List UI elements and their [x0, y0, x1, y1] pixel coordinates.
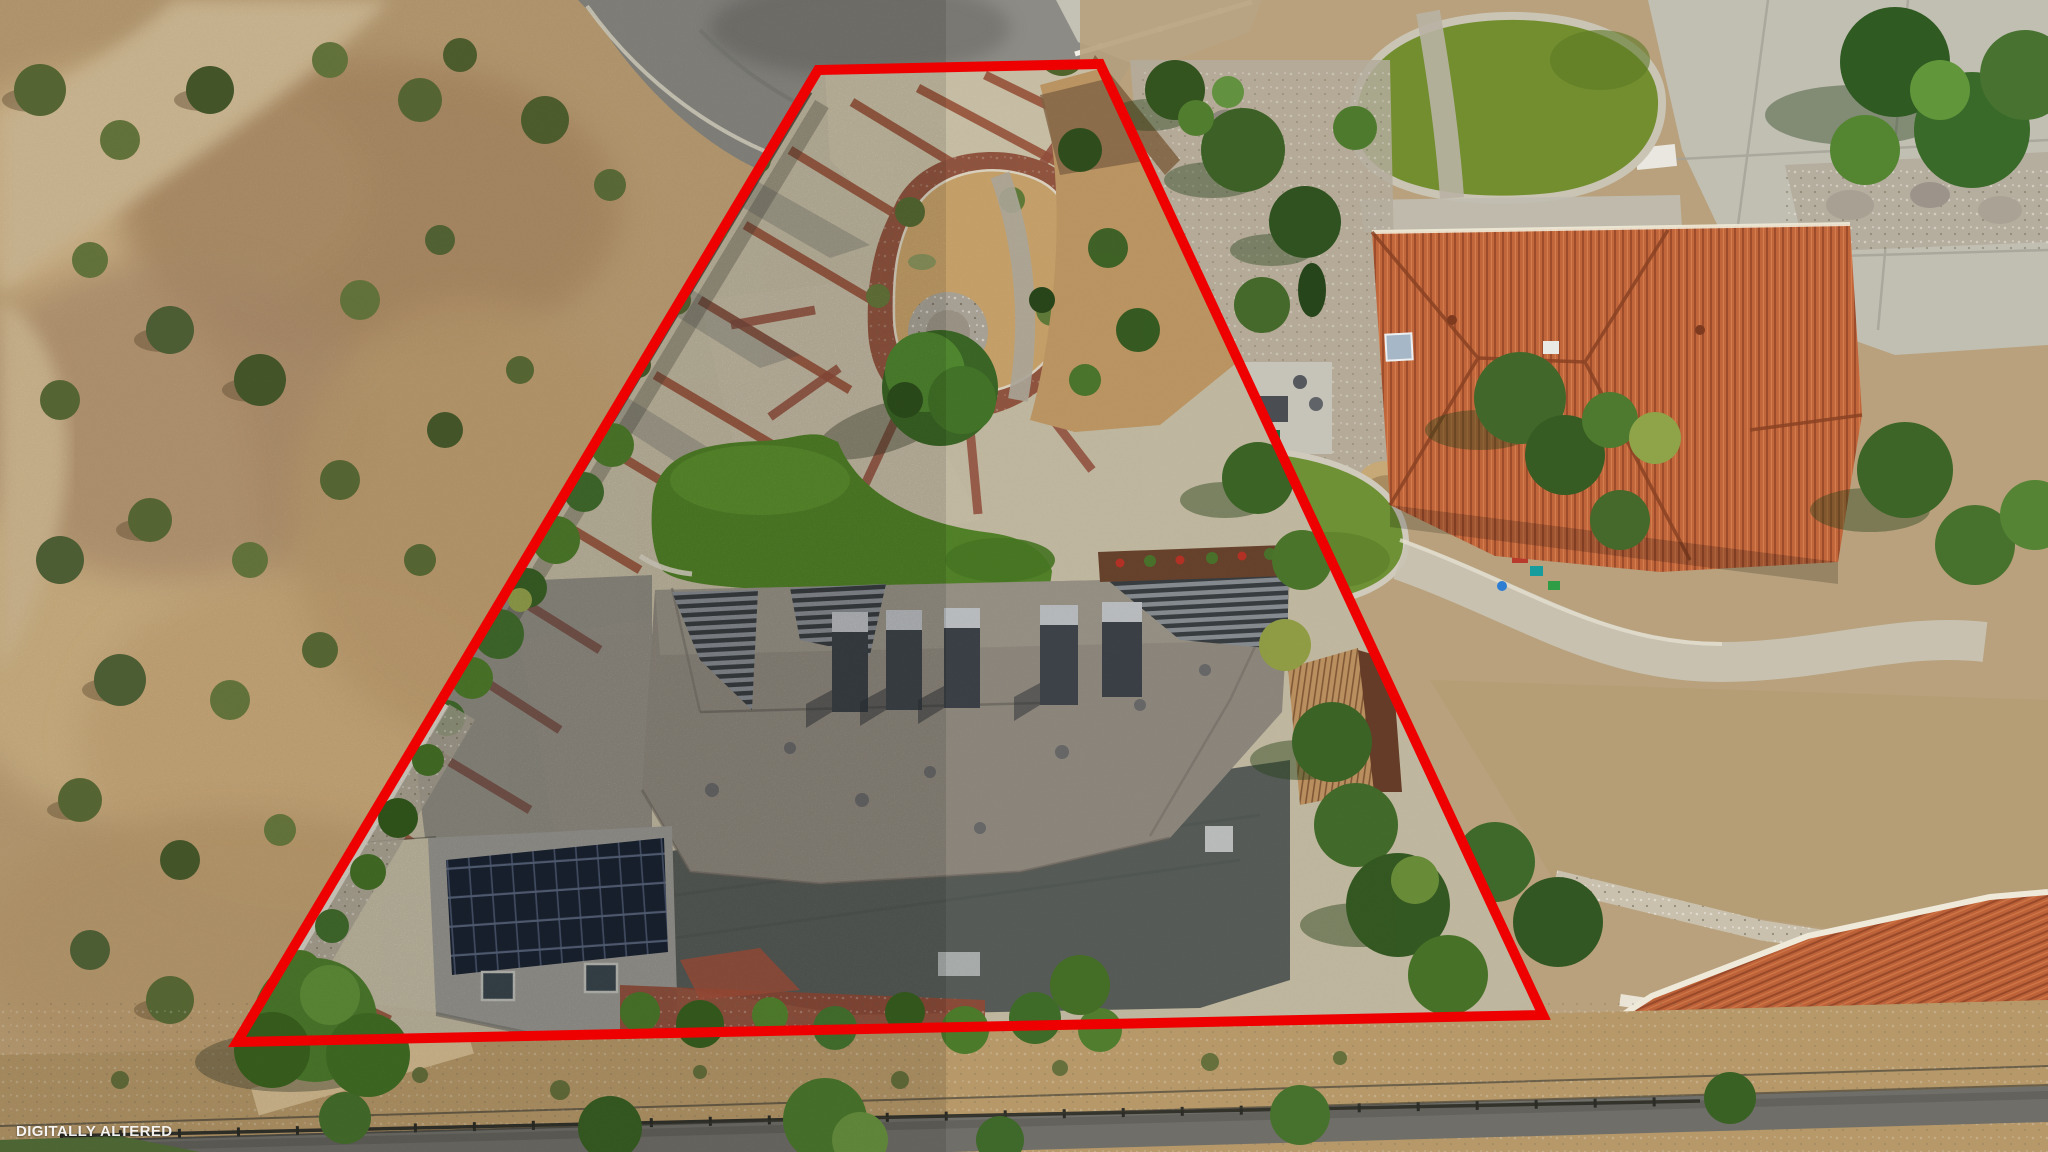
- skylight: [1385, 333, 1412, 360]
- digitally-altered-watermark: DIGITALLY ALTERED: [16, 1123, 173, 1140]
- aerial-photo: DIGITALLY ALTERED: [0, 0, 2048, 1152]
- grain-overlay: [0, 0, 860, 1152]
- roof-vent: [1543, 341, 1559, 354]
- aerial-photo-canvas: [0, 0, 2048, 1152]
